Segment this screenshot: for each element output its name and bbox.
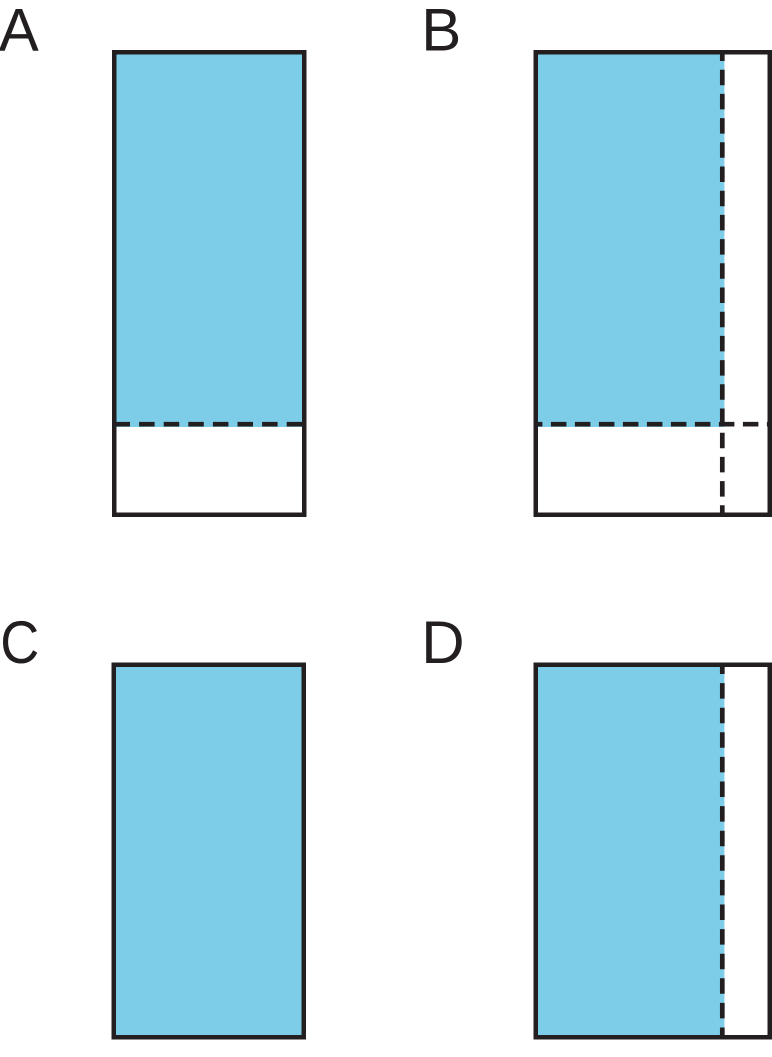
svg-text:A: A (0, 0, 39, 63)
svg-text:B: B (421, 0, 461, 63)
svg-text:C: C (0, 609, 39, 676)
svg-text:D: D (421, 609, 464, 676)
